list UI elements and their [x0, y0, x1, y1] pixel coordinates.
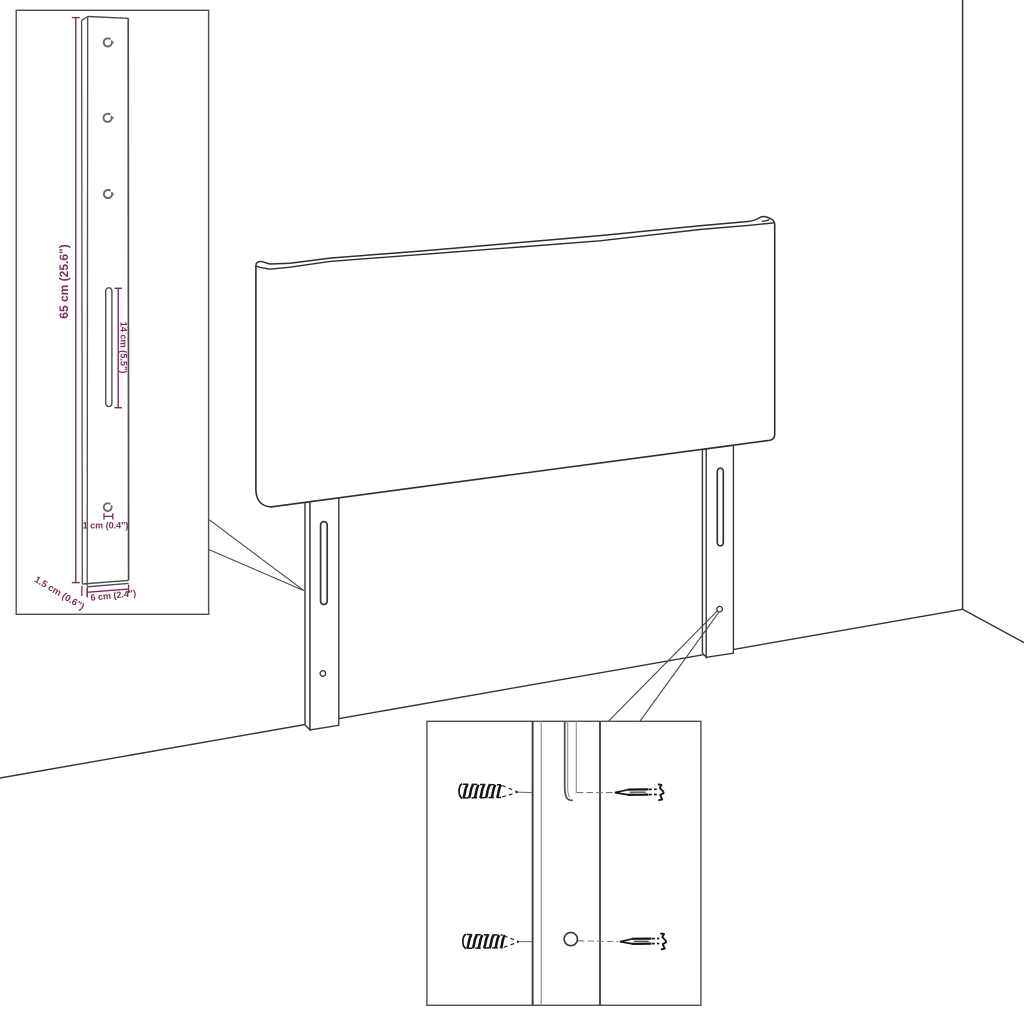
svg-text:14 cm (5.5"): 14 cm (5.5") [118, 322, 128, 374]
svg-text:1 cm (0.4"): 1 cm (0.4") [83, 521, 129, 531]
svg-text:65 cm (25.6"): 65 cm (25.6") [57, 244, 71, 318]
